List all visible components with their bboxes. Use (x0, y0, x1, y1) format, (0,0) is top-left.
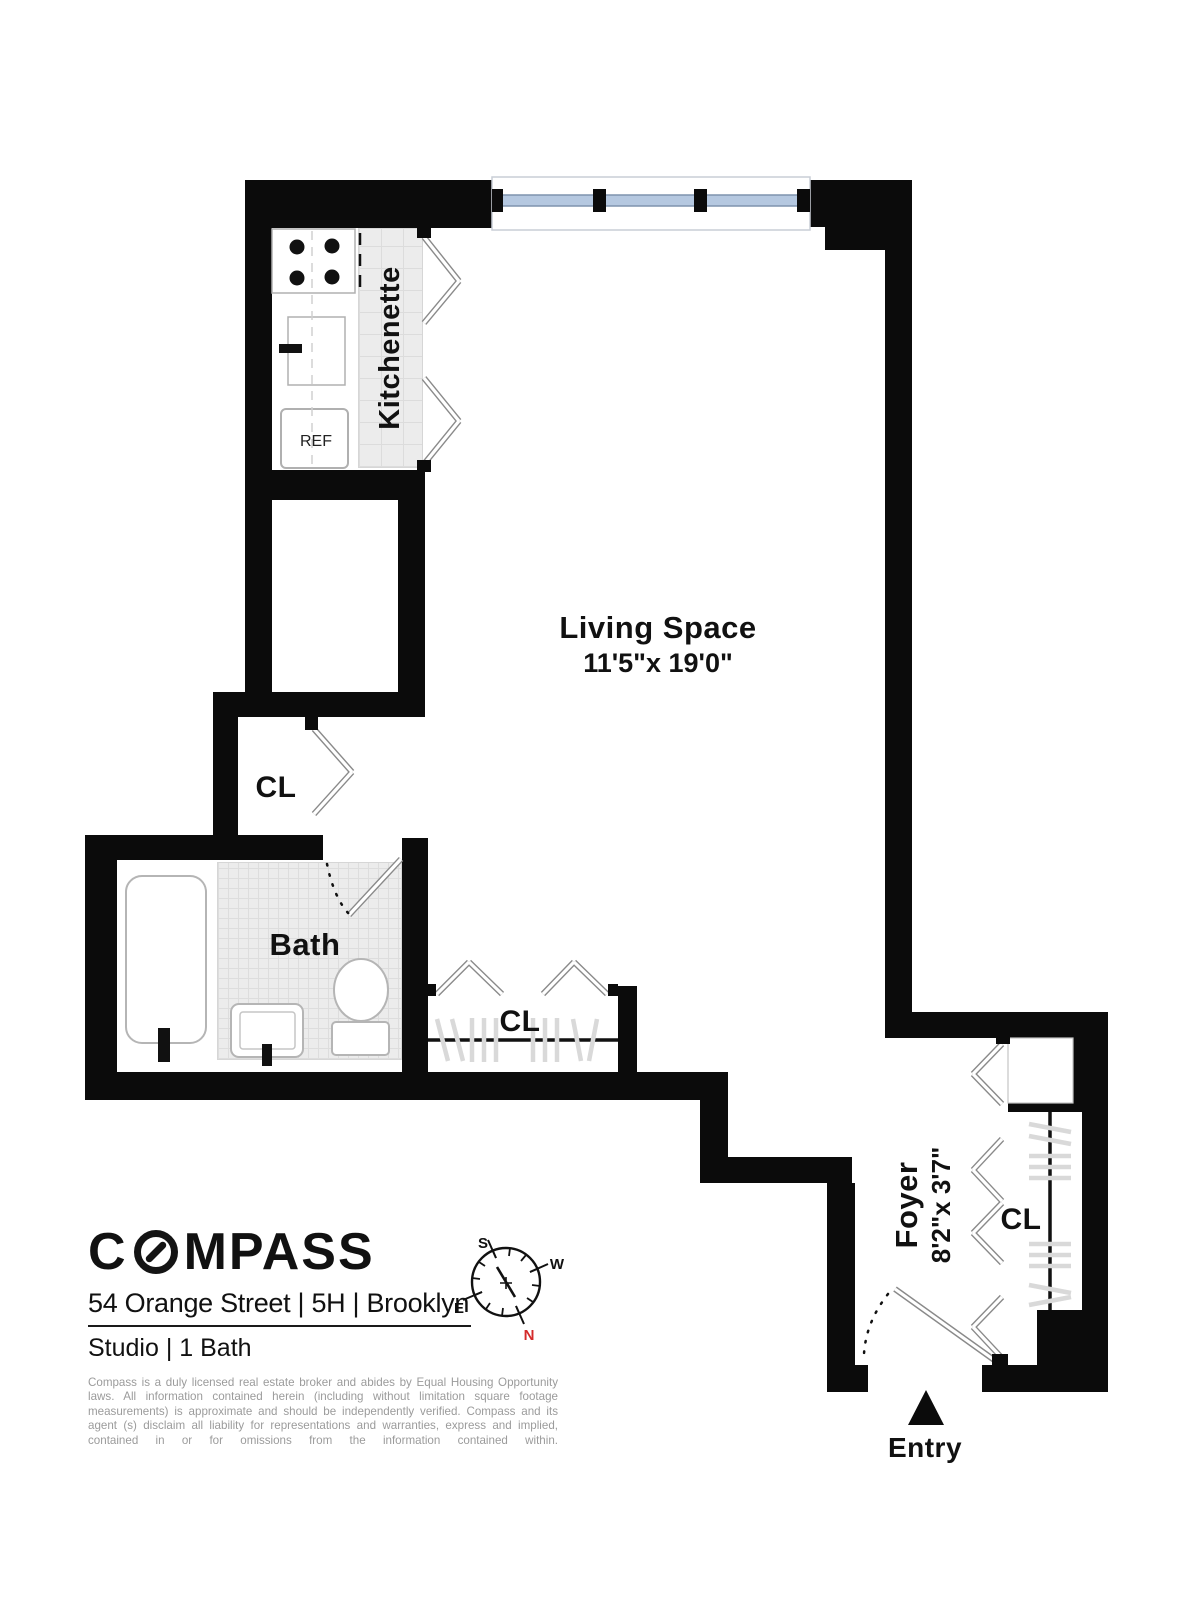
floorplan-page: S W E N Living Space 11'5"x 19'0" Kitche… (0, 0, 1200, 1600)
window-glass (500, 195, 800, 206)
sink-tap (262, 1044, 272, 1066)
living-space-dimensions: 11'5"x 19'0" (583, 648, 733, 678)
branding-block: C MPASS 54 Orange Street | 5H | Brooklyn… (88, 1226, 558, 1448)
logo-text-mpass: MPASS (184, 1226, 375, 1278)
window (492, 177, 810, 230)
toilet (332, 959, 389, 1055)
living-space-label: Living Space (559, 610, 756, 645)
listing-address: 54 Orange Street | 5H | Brooklyn (88, 1278, 471, 1327)
unit-info: Studio | 1 Bath (88, 1334, 558, 1363)
foyer-dimensions: 8'2"x 3'7" (926, 1147, 956, 1264)
bath-sink (231, 1004, 303, 1066)
tub-tap (158, 1028, 170, 1062)
legal-disclaimer: Compass is a duly licensed real estate b… (88, 1376, 558, 1448)
entry-arrow (908, 1390, 944, 1425)
stove (272, 229, 355, 293)
logo-text-c: C (88, 1226, 128, 1278)
foyer-closet-label: CL (1001, 1203, 1042, 1236)
compass-logo-o-icon (134, 1230, 178, 1274)
foyer-small-closet (1008, 1038, 1073, 1103)
kitchenette-label: Kitchenette (374, 266, 406, 429)
entry-label: Entry (888, 1432, 962, 1463)
living-closet-label: CL (500, 1005, 541, 1038)
bath-label: Bath (270, 927, 341, 962)
foyer-label: Foyer (889, 1162, 924, 1249)
hall-closet-label: CL (256, 771, 297, 804)
refrigerator-label: REF (300, 433, 332, 450)
compass-logo: C MPASS (88, 1226, 558, 1278)
bathtub (126, 876, 206, 1062)
